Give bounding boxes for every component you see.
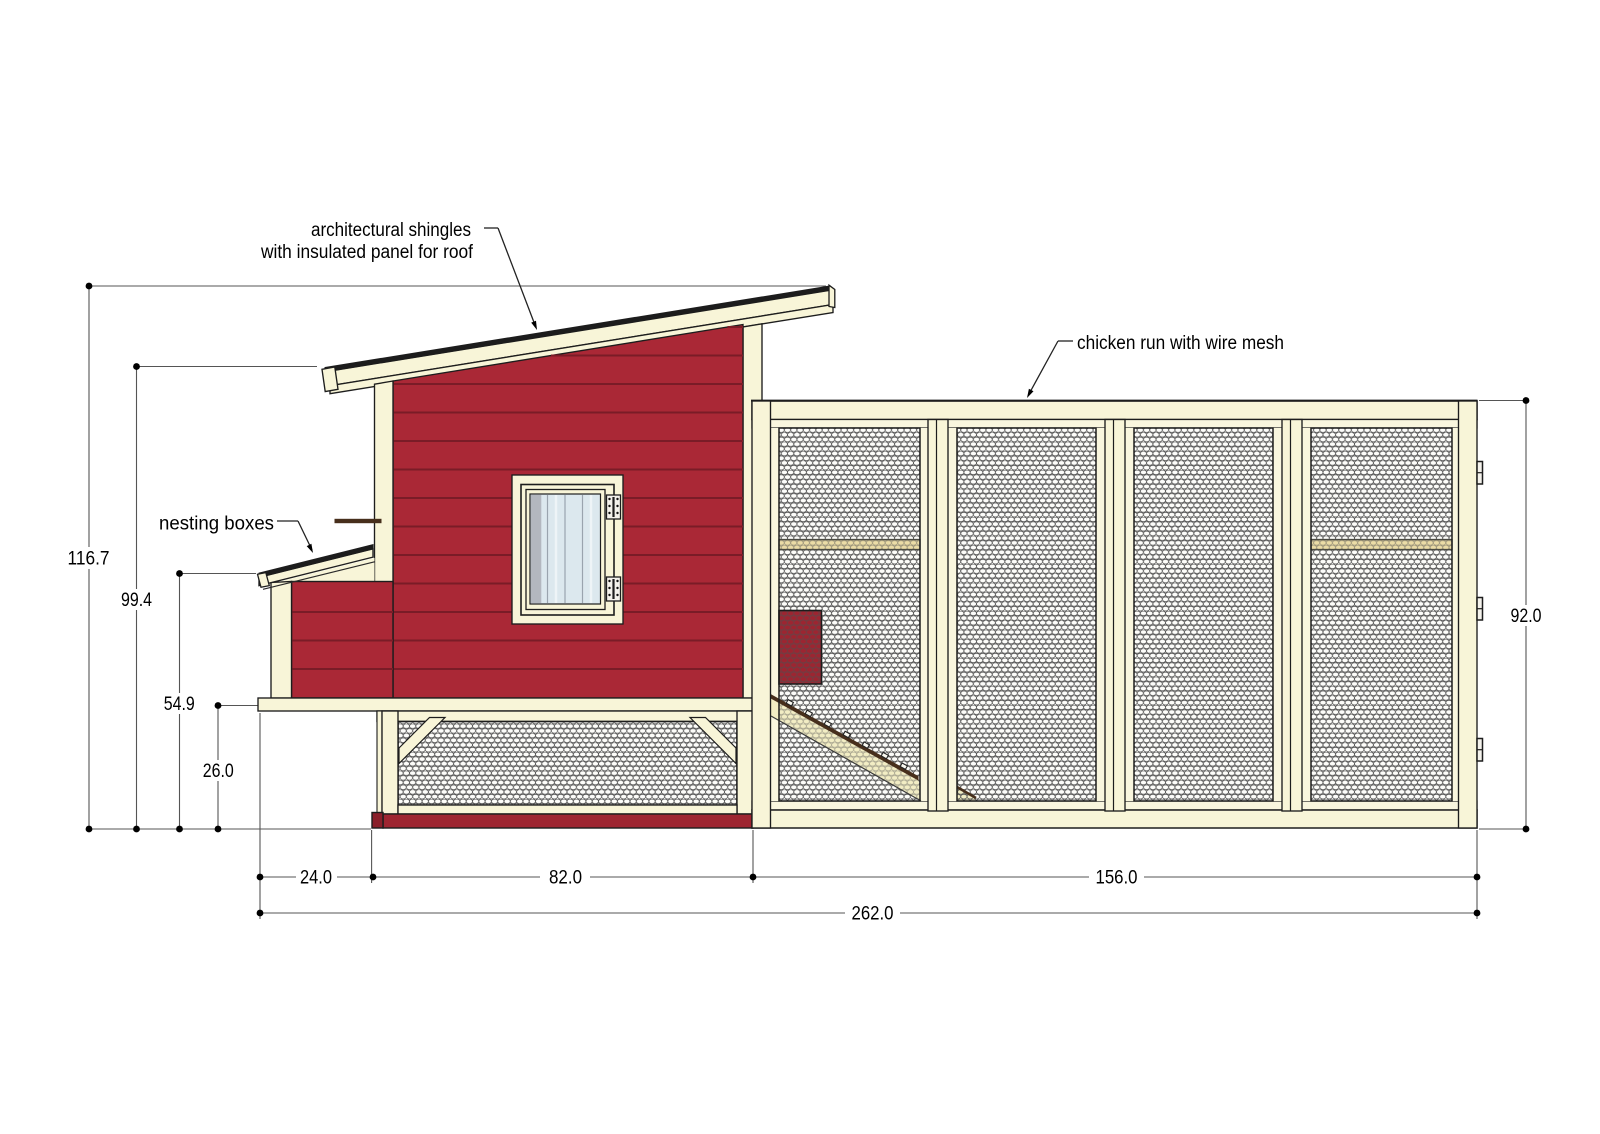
svg-text:chicken run with wire mesh: chicken run with wire mesh — [1077, 333, 1284, 354]
svg-text:26.0: 26.0 — [203, 761, 234, 782]
svg-text:156.0: 156.0 — [1096, 868, 1138, 889]
svg-text:92.0: 92.0 — [1511, 606, 1542, 627]
svg-text:architectural shingles: architectural shingles — [311, 220, 471, 241]
svg-text:54.9: 54.9 — [164, 694, 195, 715]
svg-text:262.0: 262.0 — [852, 904, 894, 925]
svg-text:99.4: 99.4 — [121, 590, 152, 611]
svg-text:with insulated panel for roof: with insulated panel for roof — [260, 242, 474, 263]
svg-text:82.0: 82.0 — [549, 868, 582, 889]
svg-text:116.7: 116.7 — [68, 549, 110, 570]
svg-text:24.0: 24.0 — [300, 868, 332, 889]
svg-text:nesting boxes: nesting boxes — [159, 514, 274, 535]
